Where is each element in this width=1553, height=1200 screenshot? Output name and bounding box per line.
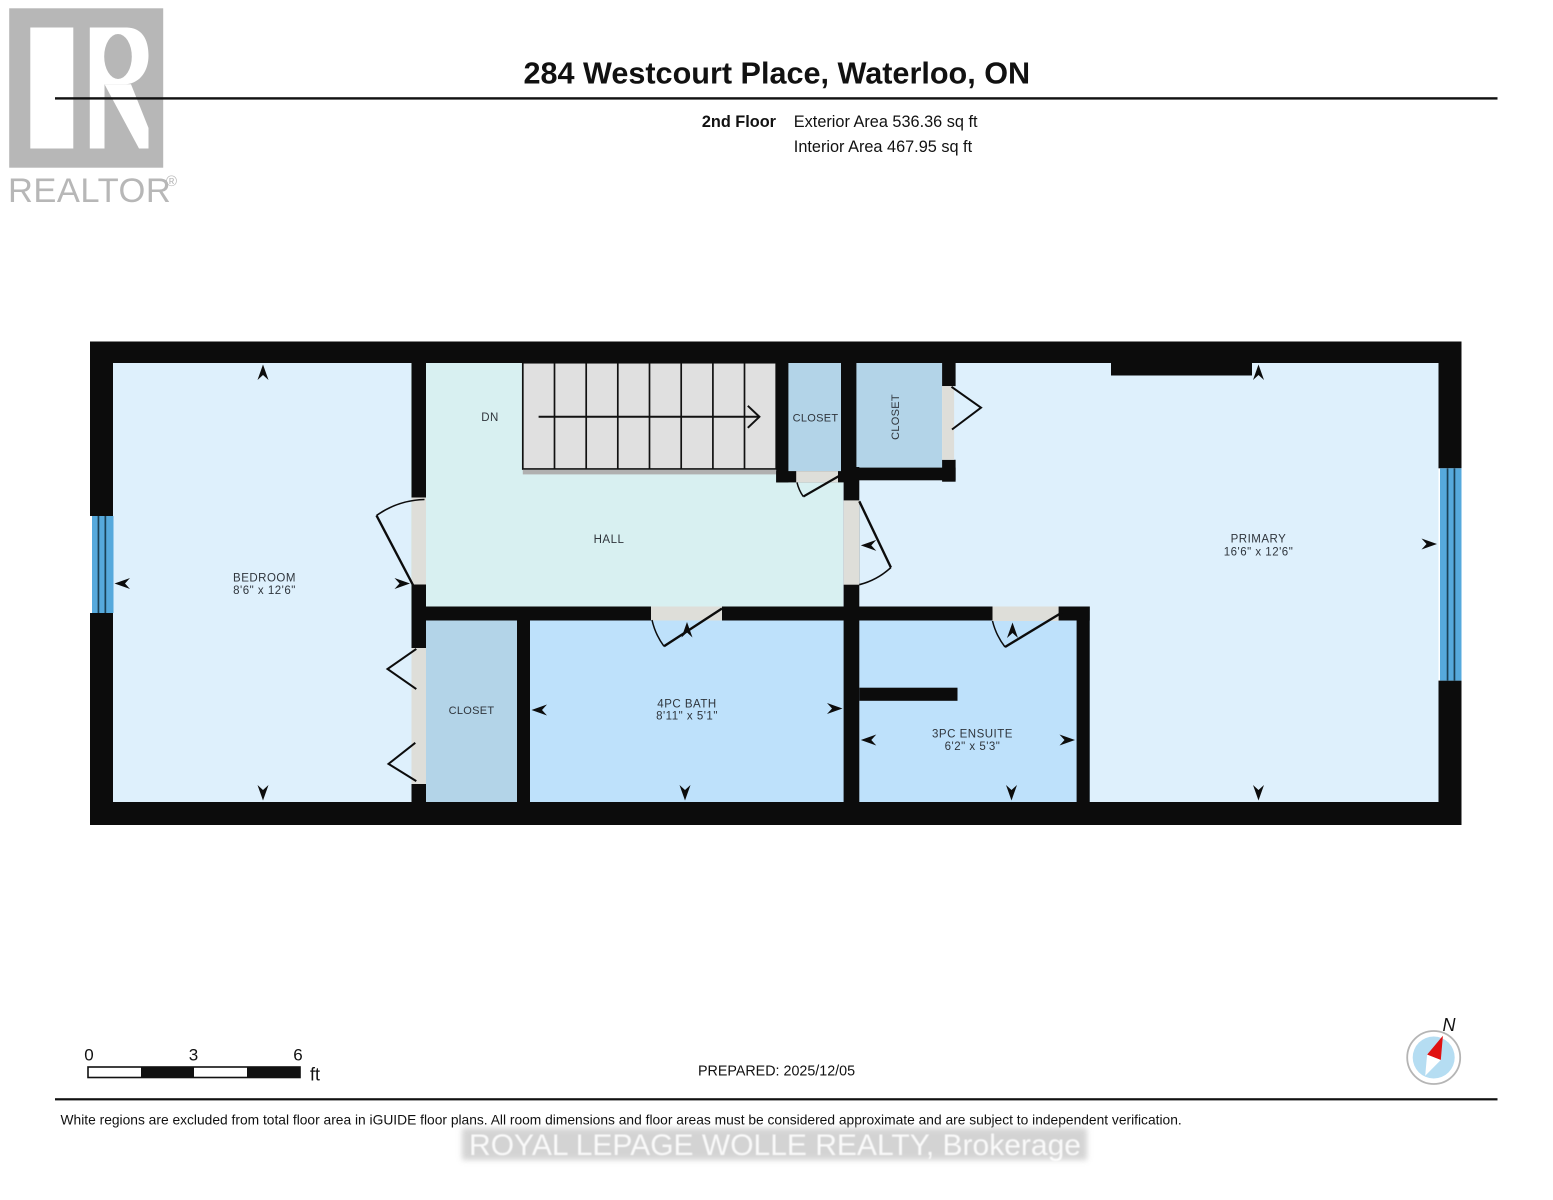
svg-text:16'6" x 12'6": 16'6" x 12'6" bbox=[1224, 547, 1294, 559]
svg-text:8'6" x 12'6": 8'6" x 12'6" bbox=[233, 585, 296, 597]
svg-text:CLOSET: CLOSET bbox=[793, 413, 839, 425]
svg-text:2nd Floor: 2nd Floor bbox=[702, 113, 777, 131]
svg-text:REALTOR: REALTOR bbox=[8, 172, 171, 210]
svg-text:4PC BATH: 4PC BATH bbox=[657, 699, 716, 711]
svg-text:PRIMARY: PRIMARY bbox=[1231, 534, 1287, 546]
svg-text:HALL: HALL bbox=[594, 534, 625, 546]
svg-text:CLOSET: CLOSET bbox=[890, 394, 902, 440]
svg-text:N: N bbox=[1443, 1015, 1457, 1035]
svg-text:6'2" x 5'3": 6'2" x 5'3" bbox=[945, 741, 1001, 753]
svg-text:ROYAL LEPAGE WOLLE REALTY, Bro: ROYAL LEPAGE WOLLE REALTY, Brokerage bbox=[469, 1129, 1081, 1162]
svg-text:CLOSET: CLOSET bbox=[449, 705, 495, 717]
svg-text:®: ® bbox=[166, 173, 177, 190]
svg-text:3PC ENSUITE: 3PC ENSUITE bbox=[932, 729, 1013, 741]
svg-text:White regions are excluded fro: White regions are excluded from total fl… bbox=[61, 1113, 1182, 1128]
svg-text:BEDROOM: BEDROOM bbox=[233, 573, 296, 585]
svg-text:284 Westcourt Place, Waterloo,: 284 Westcourt Place, Waterloo, ON bbox=[523, 57, 1030, 91]
svg-text:8'11" x 5'1": 8'11" x 5'1" bbox=[656, 711, 718, 723]
svg-text:6: 6 bbox=[293, 1046, 302, 1065]
svg-text:DN: DN bbox=[481, 412, 499, 424]
svg-text:0: 0 bbox=[84, 1046, 93, 1065]
svg-text:PREPARED: 2025/12/05: PREPARED: 2025/12/05 bbox=[698, 1064, 855, 1080]
svg-text:3: 3 bbox=[189, 1046, 198, 1065]
svg-text:Interior Area 467.95 sq ft: Interior Area 467.95 sq ft bbox=[794, 138, 973, 156]
svg-text:ft: ft bbox=[310, 1065, 320, 1085]
svg-text:Exterior Area 536.36 sq ft: Exterior Area 536.36 sq ft bbox=[794, 113, 978, 131]
